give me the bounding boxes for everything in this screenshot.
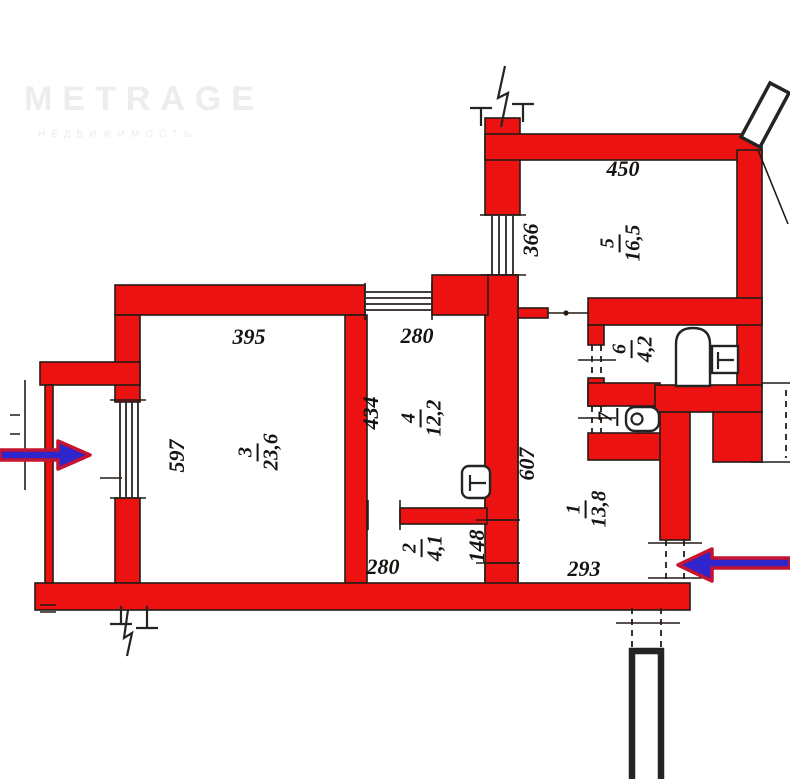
sink-symbol <box>712 346 738 373</box>
dimension-room5-window: 366 <box>518 224 544 257</box>
room-area: 16,5 <box>621 225 644 262</box>
wall-corridor-left-lower <box>485 563 518 585</box>
bathtub-symbol <box>676 328 710 386</box>
wall-room5-left-upper <box>485 118 520 215</box>
wall-bath-bottom-bar <box>655 385 762 412</box>
wall-room2-top <box>400 508 487 524</box>
wall-rooms34-top-a <box>115 285 365 315</box>
window-balcony <box>100 400 146 498</box>
wall-room3-left-lower <box>115 498 140 583</box>
wall-between-rooms-3-4 <box>345 315 367 583</box>
room-area: 13,8 <box>587 491 610 528</box>
wall-left-stub <box>40 362 140 385</box>
room-number: 7 <box>595 408 618 426</box>
dimension-room3-height: 597 <box>164 440 190 473</box>
entrance-arrow-right-icon <box>678 549 790 581</box>
room-label-5: 5 16,5 <box>598 225 645 262</box>
room-label-7: 7 <box>595 408 618 426</box>
room-number: 5 <box>598 234 621 252</box>
room-number: 3 <box>236 443 259 461</box>
wall-room5-bottom <box>588 298 762 325</box>
wall-balcony-left <box>45 385 53 585</box>
room-number: 6 <box>610 340 633 358</box>
wall-room1-top <box>588 433 662 460</box>
dimension-room3-width: 395 <box>233 324 266 350</box>
vent-symbol-top <box>470 66 534 127</box>
wall-bottom <box>35 583 690 610</box>
wall-room5-right <box>737 150 762 388</box>
wall-rooms34-top-b <box>432 275 488 315</box>
wall-corridor-top-stub <box>518 308 548 318</box>
floor-plan-drawing <box>0 0 790 780</box>
wall-corner-mass <box>713 412 762 462</box>
dimension-opening-width: 148 <box>464 530 490 563</box>
room-label-3: 3 23,6 <box>236 434 283 471</box>
room-area: 4,2 <box>633 336 656 362</box>
window-280 <box>365 283 432 320</box>
dimension-room4-height: 434 <box>358 397 384 430</box>
dimension-hall-width: 293 <box>568 556 601 582</box>
room-number: 4 <box>399 409 422 427</box>
wall-divider-6-7 <box>588 383 660 406</box>
balcony-top-right <box>741 83 789 147</box>
wall-bath-left-a <box>588 325 604 345</box>
wall-room3-left-upper <box>115 315 140 402</box>
dimension-corridor-height: 607 <box>514 448 540 481</box>
room-number: 1 <box>564 500 587 518</box>
wall-room1-right <box>660 412 690 540</box>
stairwell-symbol <box>616 608 680 779</box>
dimension-room5-width: 450 <box>607 156 640 182</box>
vent-symbol-bottom <box>110 606 158 656</box>
room-label-2: 2 4,1 <box>400 535 447 561</box>
room-area: 23,6 <box>259 434 282 471</box>
room-area: 4,1 <box>423 535 446 561</box>
room-label-6: 6 4,2 <box>610 336 657 362</box>
room-label-1: 1 13,8 <box>564 491 611 528</box>
radiator-symbol <box>462 466 490 498</box>
walls <box>35 118 762 610</box>
room-label-4: 4 12,2 <box>399 400 446 437</box>
room-number: 2 <box>400 539 423 557</box>
toilet-symbol <box>626 407 659 431</box>
dimension-room4-width: 280 <box>401 323 434 349</box>
room-area: 12,2 <box>422 400 445 437</box>
floor-plan: METRAGE НЕДВИЖИМОСТЬ <box>0 0 790 780</box>
dimension-dot <box>563 310 568 315</box>
dimension-room2-width: 280 <box>367 554 400 580</box>
